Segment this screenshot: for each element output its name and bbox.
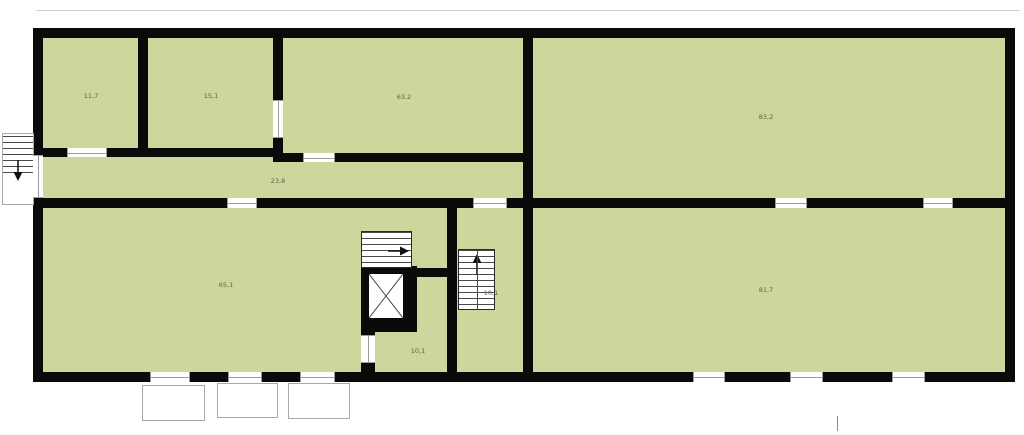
staircase-stairwell [458,249,495,310]
room-area-label: 65,1 [219,282,233,289]
porch-1 [142,385,205,421]
tick-mark [837,416,838,431]
room-area-label: 83,2 [759,114,773,121]
porch-3 [288,383,350,419]
window-bottom-5 [790,372,823,382]
window-bottom-4 [693,372,725,382]
wall-middle-horizontal [33,198,1015,208]
door-below-elevator [361,335,375,363]
door-corridor-stairwell [473,198,507,208]
room-area-label: 15,1 [204,93,218,100]
room-area-label: 81,7 [759,287,773,294]
room-area-label: 63,2 [397,94,411,101]
window-bottom-6 [892,372,925,382]
porch-2 [217,383,278,418]
door-hall-bottomright-1 [775,198,807,208]
stair-direction-down-arrow-icon [12,160,24,182]
wall-room1-room2 [138,28,148,157]
staircase-main-run [361,231,412,268]
door-exterior-stair [33,155,43,198]
wall-stairwell-left [447,203,457,378]
room-area-label: 10,1 [484,290,498,297]
window-bottom-2 [228,372,262,382]
floor-plan: 11,7 15,1 63,2 83,2 23,8 65,1 10,1 10,1 … [0,0,1024,435]
window-bottom-3 [300,372,335,382]
stair-direction-right-arrow-icon [386,245,410,257]
door-corridor-bottomleft [227,198,257,208]
elevator-icon [369,274,403,318]
upper-outline [36,10,1020,11]
stair-direction-up-arrow-icon [471,253,483,277]
door-hall-bottomright-2 [923,198,953,208]
room-area-label: 10,1 [411,348,425,355]
exterior-staircase [2,133,34,205]
room-area-label: 11,7 [84,93,98,100]
door-room3-corridor [303,153,335,162]
door-room1-corridor [67,148,107,157]
wall-room2-room3 [273,28,283,162]
door-room2-room3 [273,100,283,138]
window-bottom-1 [150,372,190,382]
room-area-label: 23,8 [271,178,285,185]
